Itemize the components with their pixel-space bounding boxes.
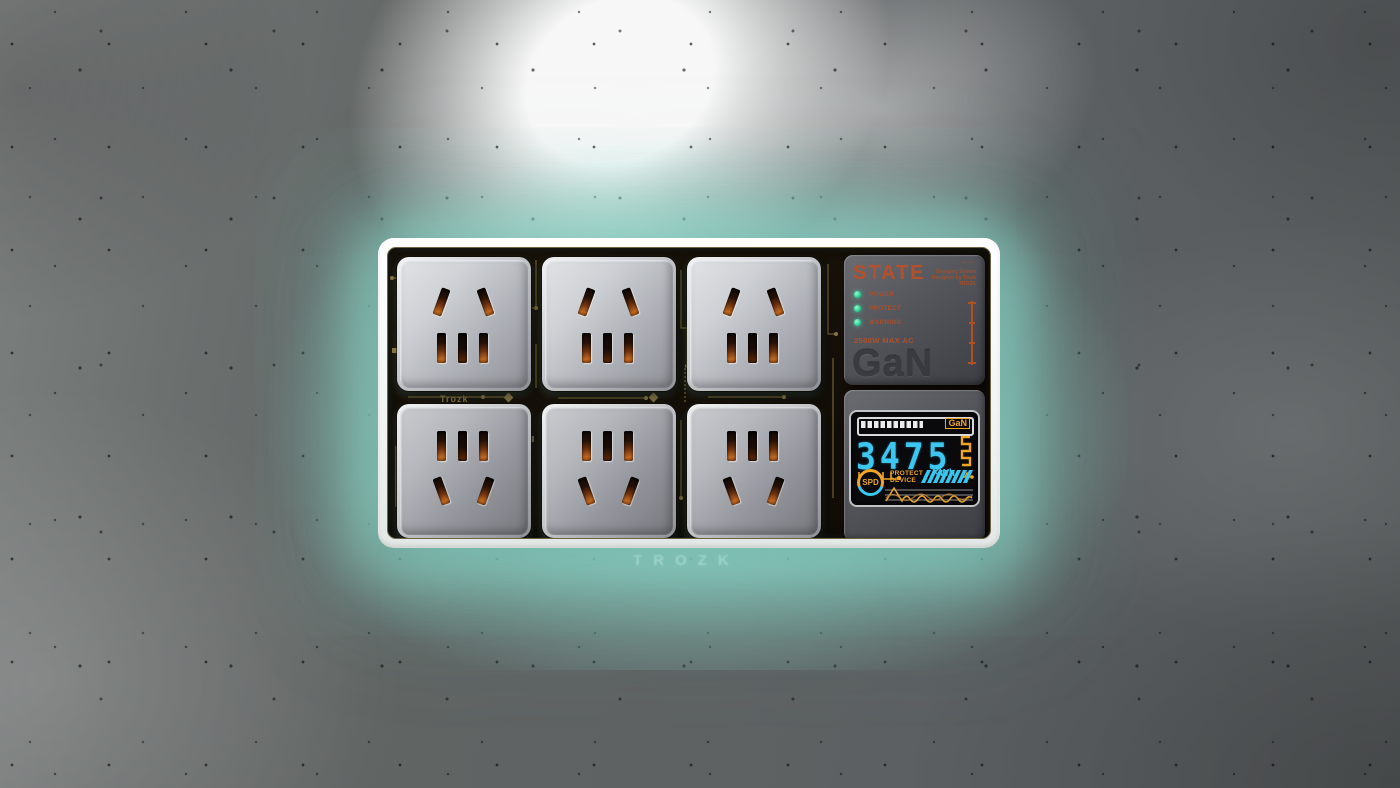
socket-face [545, 407, 673, 535]
hazard-stripes-icon [924, 470, 972, 483]
pin-slot-middle [603, 333, 612, 363]
pin-slot-angled-left [577, 476, 595, 505]
pin-slot-middle [748, 431, 757, 461]
battery-segments [861, 421, 923, 428]
corner-marks: ·=·=· [960, 260, 976, 266]
pcb-backplate: Trozk [387, 247, 991, 539]
pin-slot-middle [603, 431, 612, 461]
led-label: POWER [869, 292, 894, 298]
pin-slot-angled-right [766, 287, 784, 316]
pin-slot-right [479, 333, 488, 363]
pin-slot-angled-right [476, 476, 494, 505]
pin-slot-right [624, 333, 633, 363]
status-module-bottom: GaN 3475 KWh [844, 390, 985, 539]
info-line: TROZK [932, 281, 976, 287]
protect-line: DEVICE [890, 478, 923, 485]
socket-face [690, 260, 818, 388]
info-text: Charging Station Designed by Trozk TROZK [932, 269, 976, 287]
pin-slot-left [582, 333, 591, 363]
pin-slot-angled-left [432, 476, 450, 505]
warning-led-icon [854, 319, 861, 326]
pcb-brand-label: Trozk [440, 394, 469, 404]
protect-led-icon [854, 305, 861, 312]
socket-outlet-3 [687, 257, 821, 391]
pin-slot-right [624, 431, 633, 461]
pin-slot-angled-left [432, 287, 450, 316]
socket-outlet-2 [542, 257, 676, 391]
pin-slot-right [769, 431, 778, 461]
pin-slot-angled-right [621, 476, 639, 505]
pin-slot-right [769, 333, 778, 363]
energy-display-screen: GaN 3475 KWh [851, 412, 978, 505]
state-title: STATE [853, 262, 926, 285]
socket-outlet-6 [687, 404, 821, 538]
protect-device-label: PROTECT DEVICE [890, 471, 923, 484]
power-led-icon [854, 291, 861, 298]
pin-slot-angled-right [766, 476, 784, 505]
gan-embossed-label: GaN [852, 343, 933, 386]
pin-slot-angled-right [621, 287, 639, 316]
waveform-icon [885, 486, 973, 503]
status-module: STATE ·=·=· Charging Station Designed by… [844, 255, 985, 539]
pin-slot-middle [458, 333, 467, 363]
led-label: WARNING [869, 320, 902, 326]
socket-face [545, 260, 673, 388]
pin-slot-angled-right [476, 287, 494, 316]
pin-slot-left [437, 431, 446, 461]
socket-outlet-1 [397, 257, 531, 391]
socket-outlet-4 [397, 404, 531, 538]
pin-slot-right [479, 431, 488, 461]
pin-slot-middle [458, 431, 467, 461]
pin-slot-middle [748, 333, 757, 363]
calibration-line [966, 299, 978, 367]
pin-slot-angled-left [722, 287, 740, 316]
pin-slot-left [727, 431, 736, 461]
spd-ring-icon: SPD [857, 469, 884, 496]
socket-face [690, 407, 818, 535]
led-label: PROTECT [869, 306, 901, 312]
status-module-top: STATE ·=·=· Charging Station Designed by… [844, 255, 985, 385]
gan-badge: GaN [945, 418, 970, 429]
pin-slot-left [727, 333, 736, 363]
socket-face [400, 407, 528, 535]
socket-face [400, 260, 528, 388]
pin-slot-angled-left [722, 476, 740, 505]
pin-slot-angled-left [577, 287, 595, 316]
power-strip-panel: Trozk [378, 238, 1000, 548]
pin-slot-left [437, 333, 446, 363]
pin-slot-left [582, 431, 591, 461]
wall-brand-wordmark: TROZK [633, 552, 740, 569]
socket-outlet-5 [542, 404, 676, 538]
battery-bar: GaN [857, 417, 974, 436]
spd-label: SPD [860, 472, 881, 493]
coil-icon [957, 436, 973, 468]
